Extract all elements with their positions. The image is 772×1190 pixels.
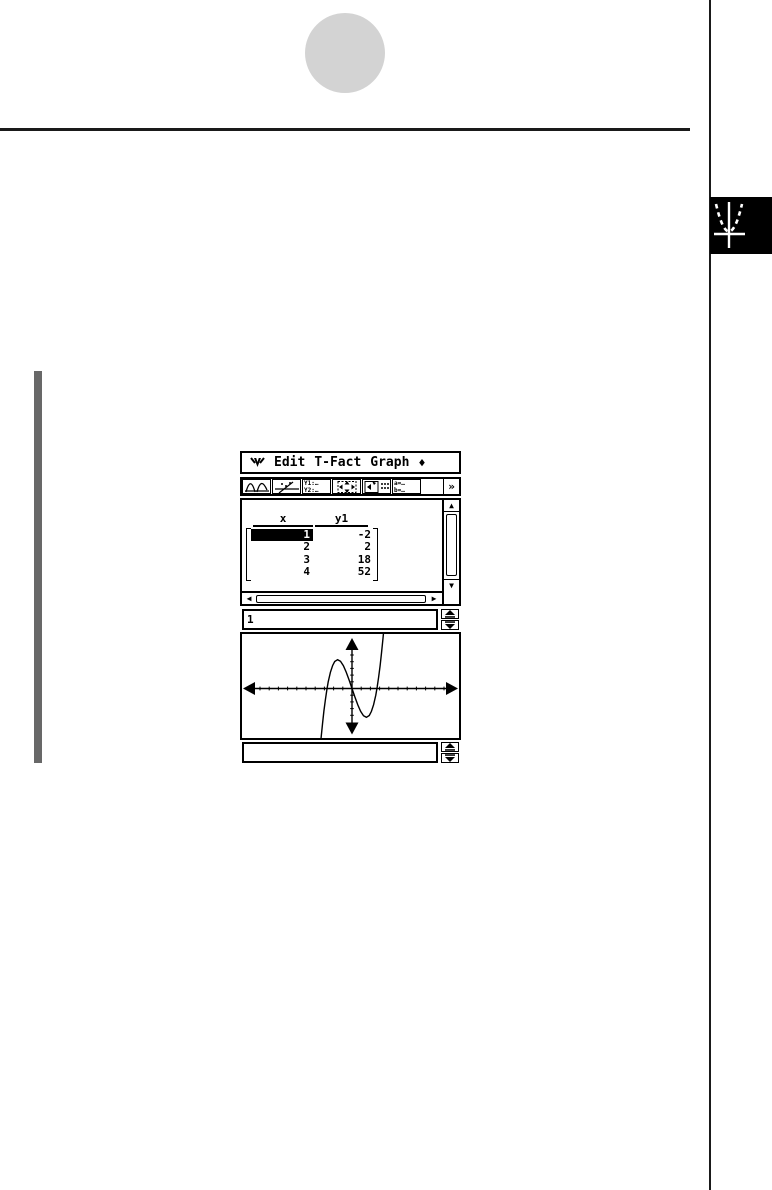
graph-trace-icon[interactable] <box>272 479 301 494</box>
table-input-icon[interactable] <box>362 479 391 494</box>
manual-page: Edit T-Fact Graph ♦ <box>0 0 772 1190</box>
parabola-axes-icon <box>710 239 772 258</box>
table-cell[interactable]: 4 <box>251 566 310 578</box>
table-cell[interactable]: 2 <box>251 541 310 553</box>
toolbar-overflow-icon[interactable]: » <box>443 479 459 494</box>
stepper-down-icon[interactable] <box>441 753 459 763</box>
horizontal-rule <box>0 128 690 131</box>
vertical-scroll-thumb[interactable] <box>446 514 457 576</box>
calculator-screenshot: Edit T-Fact Graph ♦ <box>240 451 461 763</box>
table-row: 2 2 <box>242 541 442 553</box>
gray-circle-decoration <box>305 13 385 93</box>
table-cell[interactable]: 52 <box>315 566 371 578</box>
table-row: 1 -2 <box>242 529 442 541</box>
cell-edit-row: 1 <box>240 609 461 630</box>
table-cell[interactable]: 3 <box>251 554 310 566</box>
resize-window-icon[interactable] <box>332 479 361 494</box>
scroll-right-icon[interactable]: ▶ <box>428 593 440 604</box>
table-row: 3 18 <box>242 554 442 566</box>
toolbar-spacer <box>422 479 443 494</box>
table-cell[interactable]: 2 <box>315 541 371 553</box>
variables-icon[interactable]: a=… b=… <box>392 479 421 494</box>
sidebar-accent-bar <box>34 371 42 763</box>
table-content: x y1 1 -2 2 2 3 18 4 <box>242 500 442 591</box>
header-underline <box>315 525 368 527</box>
toolbar: Y1:… Y2:… <box>240 477 461 496</box>
app-menu-icon[interactable] <box>249 457 266 468</box>
graph-plot <box>242 634 459 738</box>
horizontal-scroll-thumb[interactable] <box>256 595 426 603</box>
header-underline <box>253 525 313 527</box>
column-header-x: x <box>253 512 313 523</box>
chapter-tab <box>710 197 772 254</box>
scroll-down-icon[interactable]: ▼ <box>444 579 459 591</box>
y-axis <box>346 638 359 735</box>
cell-input[interactable]: 1 <box>242 609 438 630</box>
cell-stepper <box>441 609 459 630</box>
settings-diamond-icon[interactable]: ♦ <box>418 456 425 470</box>
menu-item-graph[interactable]: Graph <box>370 455 409 470</box>
horizontal-scrollbar[interactable]: ◀ ▶ <box>242 591 444 604</box>
graph-editor-icon[interactable]: Y1:… Y2:… <box>302 479 331 494</box>
menu-item-tfact[interactable]: T-Fact <box>314 455 361 470</box>
table-cell[interactable]: -2 <box>315 529 371 541</box>
stepper-up-icon[interactable] <box>441 609 459 619</box>
scroll-left-icon[interactable]: ◀ <box>243 593 255 604</box>
graph-input[interactable] <box>242 742 438 763</box>
stepper-down-icon[interactable] <box>441 620 459 630</box>
graph-window[interactable] <box>240 632 461 740</box>
graph-edit-row <box>240 742 461 763</box>
table-window: x y1 1 -2 2 2 3 18 4 <box>240 498 461 606</box>
graph-curves-icon[interactable] <box>242 479 271 494</box>
menu-item-edit[interactable]: Edit <box>274 455 305 470</box>
menu-bar: Edit T-Fact Graph ♦ <box>240 451 461 474</box>
column-header-y1: y1 <box>315 512 368 523</box>
vertical-scrollbar[interactable]: ▲ ▼ <box>442 500 459 591</box>
page-edge-rule <box>709 0 711 1190</box>
table-row: 4 52 <box>242 566 442 578</box>
graph-stepper <box>441 742 459 763</box>
stepper-up-icon[interactable] <box>441 742 459 752</box>
scroll-up-icon[interactable]: ▲ <box>444 500 459 512</box>
